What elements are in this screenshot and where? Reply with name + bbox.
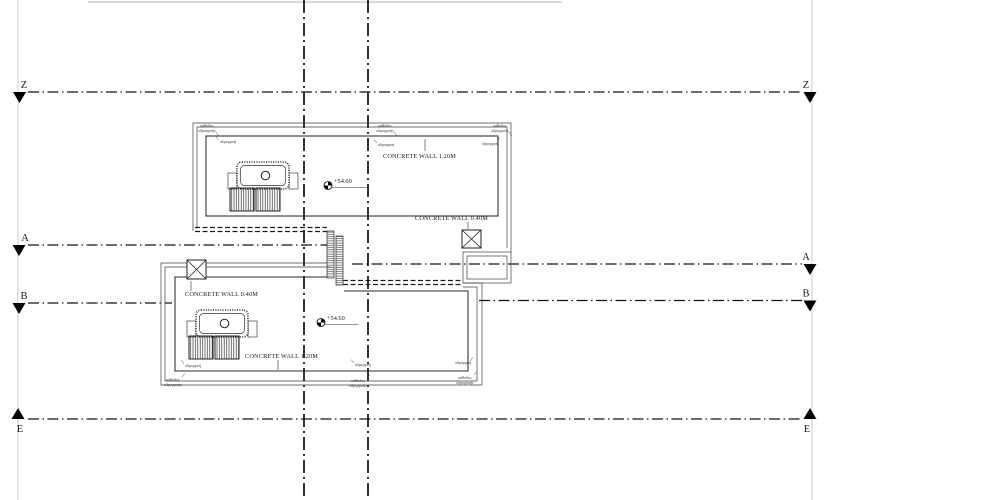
- section-arrow-b-left: [13, 303, 26, 314]
- section-markers: Z Z A A B B E E: [12, 80, 817, 435]
- gutter-label: υδρορροή: [378, 142, 394, 147]
- gutter-label: υδρορροή: [355, 362, 371, 367]
- section-arrow-z-left: [13, 92, 26, 103]
- vent-circle-icon: [261, 171, 270, 180]
- section-label-b-left: B: [20, 291, 27, 302]
- grille-icon: [256, 188, 280, 211]
- drawing-canvas: Z Z A A B B E E: [0, 0, 1000, 500]
- rooftop-unit-upper: [228, 162, 298, 211]
- downpipe-label: υδρορροής: [456, 380, 474, 385]
- gutter-label: υδρορροή: [482, 141, 498, 146]
- section-label-a-right: A: [802, 252, 810, 263]
- gutter-label: υδρορροή: [220, 139, 236, 144]
- section-label-b-right: B: [802, 289, 809, 300]
- grille-icon: [189, 336, 213, 359]
- stair-hatch: [327, 231, 343, 285]
- downpipe-label: υδρορροής: [491, 128, 509, 133]
- chimney-box-icon-upper: [462, 230, 481, 248]
- grille-icon: [215, 336, 239, 359]
- downpipe-label: υδρορροής: [164, 382, 182, 387]
- rooftop-unit-lower: [187, 310, 257, 359]
- elevation-marker-lower: +54.60: [317, 315, 358, 327]
- roof-plan-drawing: Z Z A A B B E E: [0, 0, 1000, 500]
- wall-label-upper-parapet: CONCRETE WALL 1.20M: [383, 153, 456, 160]
- wall-label-lower-left: CONCRETE WALL 0.40M: [185, 291, 258, 298]
- elevation-value-upper: +54.60: [334, 178, 352, 185]
- section-arrow-b-right: [804, 301, 817, 312]
- downpipe-label: υδρορροής: [198, 128, 216, 133]
- grille-icon: [230, 188, 254, 211]
- gutter-label: υδρορροή: [185, 363, 201, 368]
- elevation-marker-upper: +54.60: [324, 178, 367, 190]
- guide-lines: [18, 0, 812, 500]
- section-arrow-a-left: [13, 245, 26, 256]
- gutter-label: υδρορροή: [455, 360, 471, 365]
- section-label-z-right: Z: [803, 80, 809, 91]
- section-arrow-e-left: [12, 408, 25, 419]
- section-label-a-left: A: [21, 233, 29, 244]
- wall-label-upper-right: CONCRETE WALL 0.40M: [415, 215, 488, 222]
- section-label-e-right: E: [804, 424, 810, 435]
- section-arrow-a-right: [804, 264, 817, 275]
- downpipe-label: υδρορροής: [376, 128, 394, 133]
- chimney-box-icon-lower: [187, 260, 206, 279]
- section-label-e-left: E: [17, 424, 23, 435]
- wall-label-lower-parapet: CONCRETE WALL 1.20M: [245, 353, 318, 360]
- elevation-value-lower: +54.60: [327, 315, 345, 322]
- section-label-z-left: Z: [21, 80, 27, 91]
- downpipe-label: υδρορροής: [349, 383, 367, 388]
- section-lines: [28, 92, 802, 419]
- section-arrow-e-right: [804, 408, 817, 419]
- vent-circle-icon: [220, 319, 229, 328]
- section-arrow-z-right: [804, 92, 817, 103]
